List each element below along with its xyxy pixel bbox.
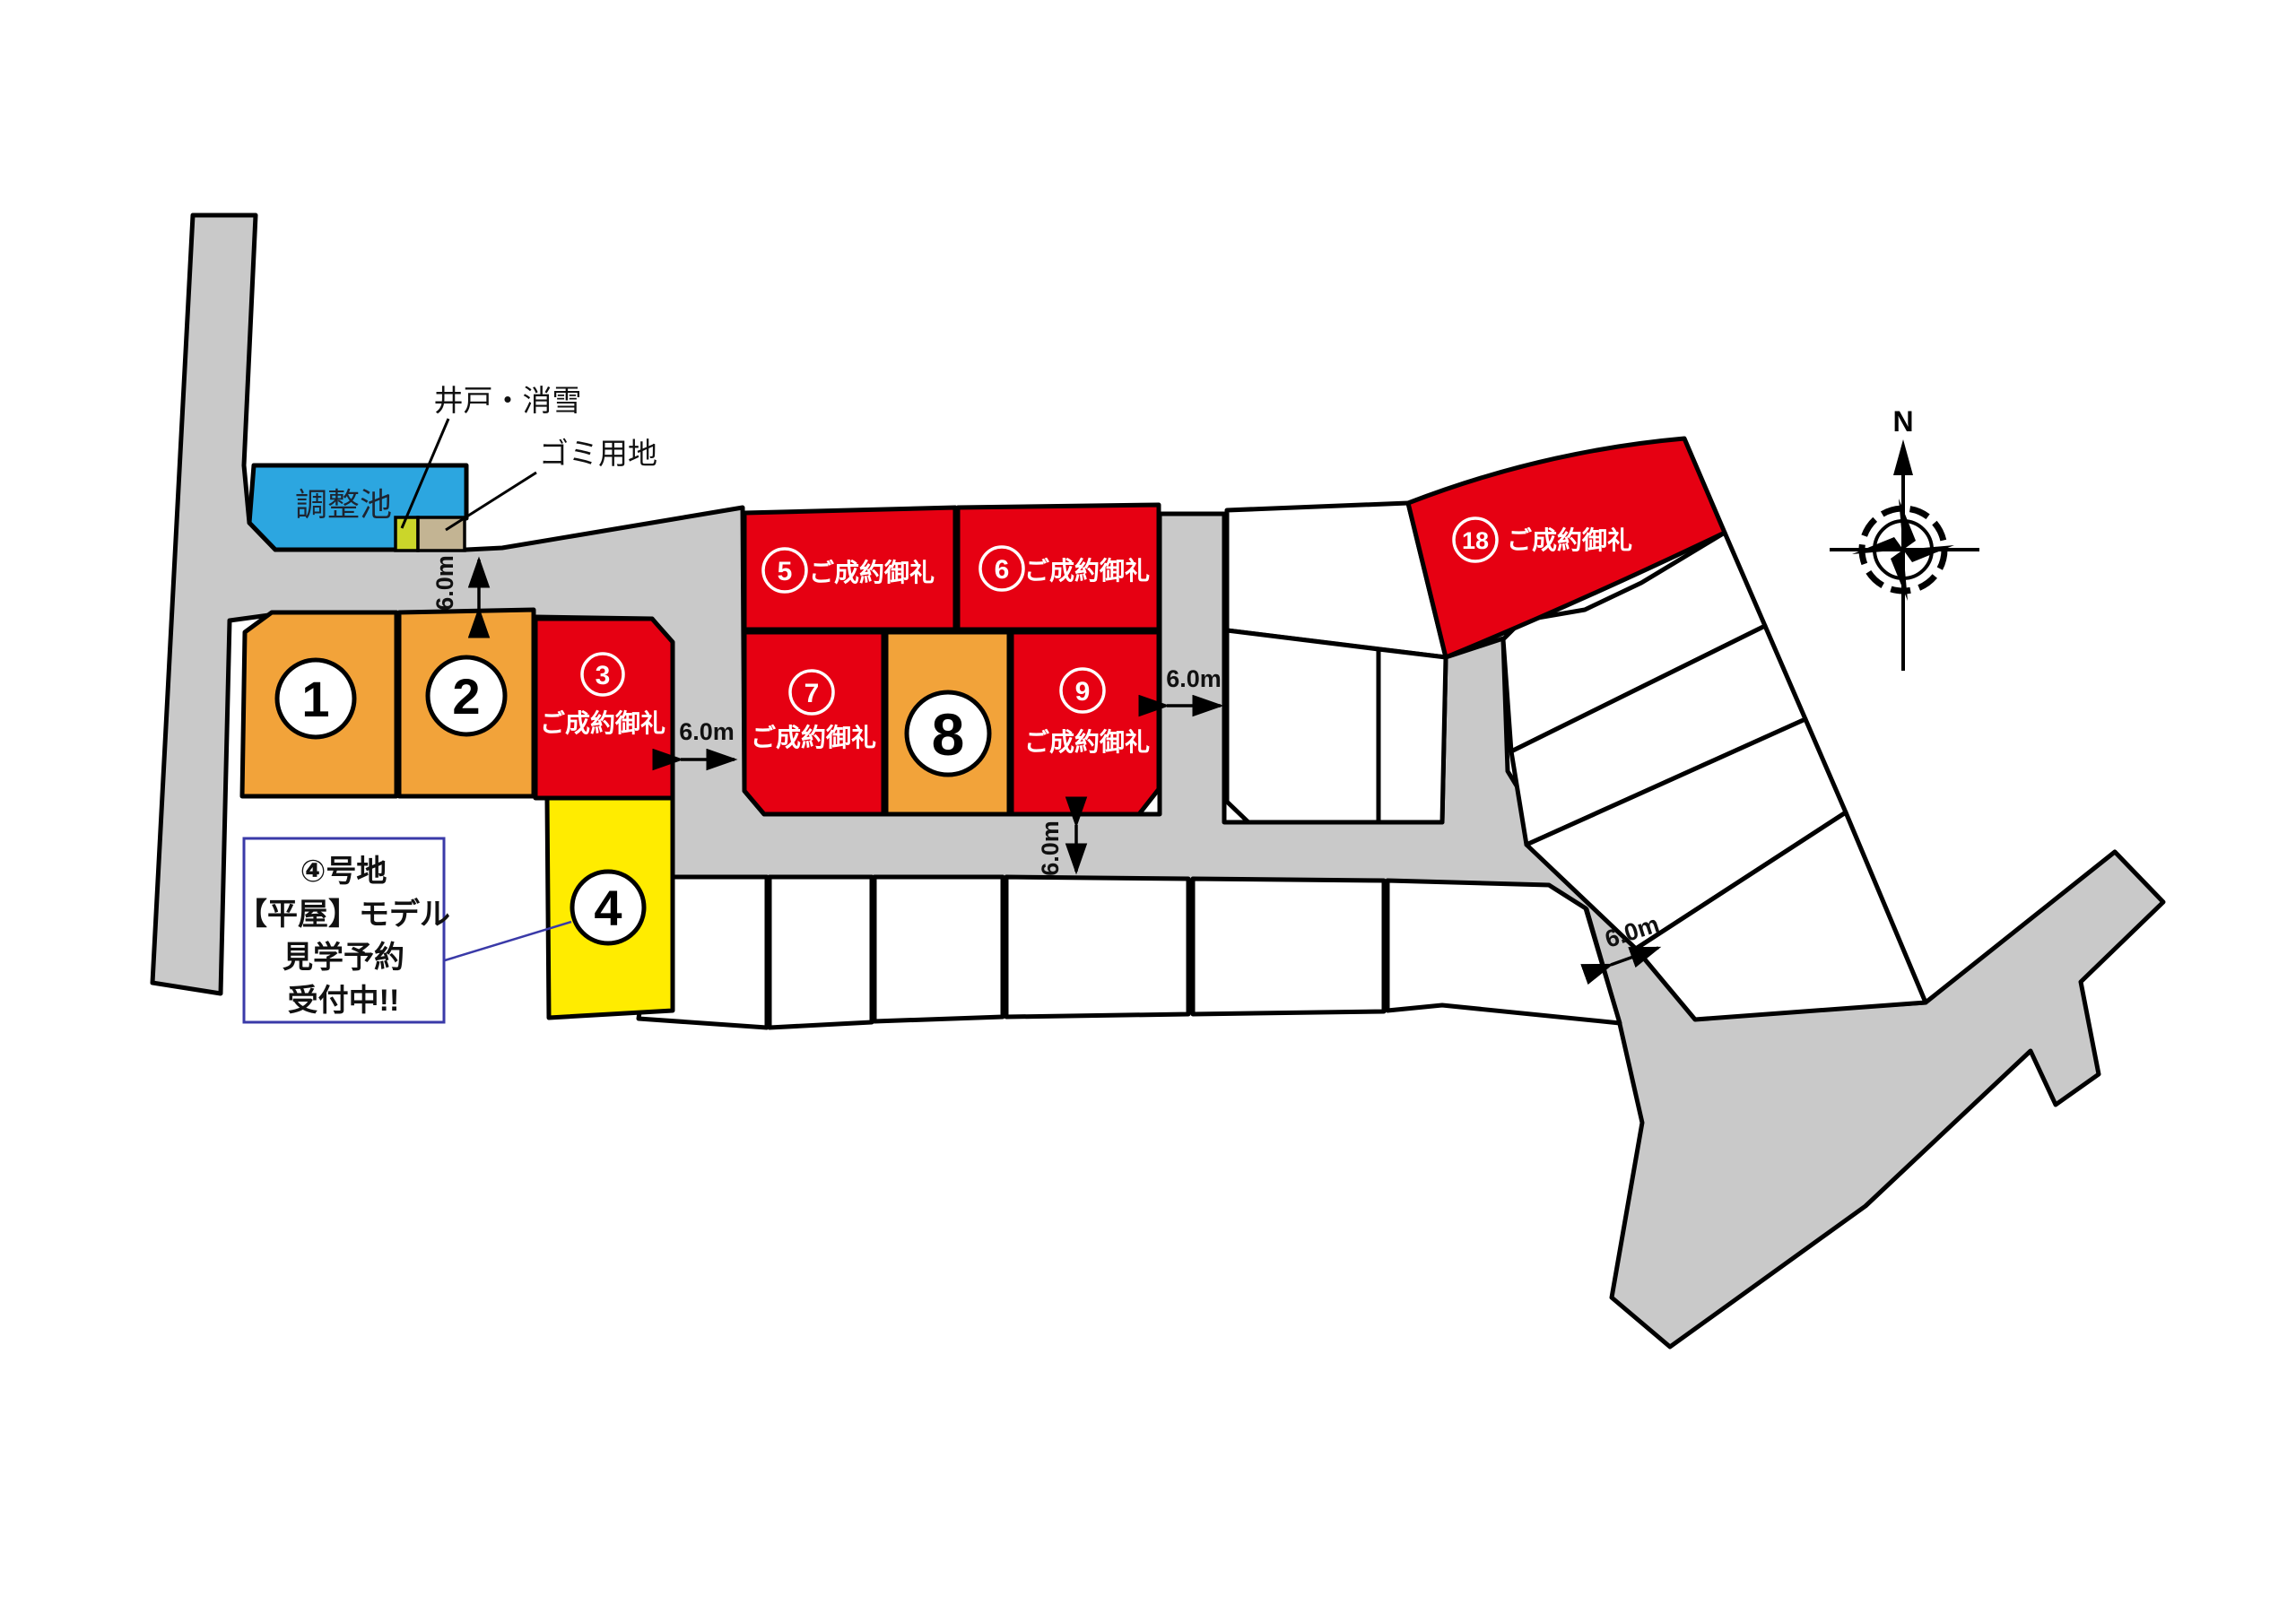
lot-number: 4 — [594, 880, 622, 936]
svg-text:6.0m: 6.0m — [431, 555, 458, 611]
svg-text:6.0m: 6.0m — [679, 718, 735, 745]
white-lot-row-5[interactable] — [1193, 879, 1384, 1014]
lot-number: 3 — [596, 661, 611, 690]
lot-number: 9 — [1075, 677, 1091, 707]
lot-5[interactable]: 5 ご成約御礼 — [744, 508, 955, 629]
lot-number: 2 — [452, 668, 480, 725]
white-lot-upper-2[interactable] — [1227, 630, 1378, 822]
subdivision-map: 1 2 3 ご成約御礼 4 5 ご成約御礼 6 ご成約御礼 7 ご成約御礼 — [0, 0, 2296, 1623]
lot-status: ご成約御礼 — [540, 708, 665, 737]
lot-number: 7 — [804, 679, 820, 708]
annotation-line-3: 見学予約 — [283, 940, 404, 975]
lot-status: ご成約御礼 — [809, 558, 935, 586]
pond-label: 調整池 — [295, 486, 392, 523]
lot-2[interactable]: 2 — [399, 610, 534, 796]
lot-9[interactable]: 9 ご成約御礼 — [1012, 632, 1159, 814]
lot-status: ご成約御礼 — [751, 723, 876, 751]
annotation-box: ④号地 【平屋】モデル 見学予約 受付中!! — [237, 838, 571, 1022]
lot-status: ご成約御礼 — [1507, 525, 1632, 554]
well-snowmelt-label: 井戸・消雪 — [434, 384, 582, 417]
annotation-line-2: 【平屋】モデル — [237, 897, 450, 932]
lot-7[interactable]: 7 ご成約御礼 — [744, 632, 883, 814]
lot-4[interactable]: 4 — [547, 798, 673, 1018]
lot-8[interactable]: 8 — [886, 632, 1009, 814]
lot-status: ご成約御礼 — [1024, 556, 1150, 585]
annotation-line-4: 受付中!! — [288, 984, 400, 1018]
compass-rose-icon — [1852, 499, 1954, 601]
lot-number: 18 — [1462, 527, 1489, 554]
compass: N — [1830, 405, 1979, 671]
white-lot-row-3[interactable] — [874, 877, 1003, 1021]
annotation-line-1: ④号地 — [300, 855, 387, 889]
lot-1[interactable]: 1 — [242, 612, 396, 796]
white-lot-upper-3[interactable] — [1378, 649, 1446, 822]
compass-needle-icon — [1893, 439, 1913, 475]
white-lot-row-2[interactable] — [770, 877, 872, 1028]
lot-number: 6 — [995, 555, 1010, 585]
white-lot-row-4[interactable] — [1006, 877, 1188, 1017]
lot-number: 1 — [301, 671, 329, 727]
lot-map-page: 1 2 3 ご成約御礼 4 5 ご成約御礼 6 ご成約御礼 7 ご成約御礼 — [0, 0, 2296, 1623]
garbage-label: ゴミ用地 — [539, 437, 657, 470]
compass-north-label: N — [1892, 405, 1913, 438]
lot-status: ご成約御礼 — [1024, 727, 1150, 756]
svg-text:6.0m: 6.0m — [1166, 665, 1222, 692]
lot-number: 8 — [932, 701, 965, 768]
well-snowmelt-plot — [396, 517, 418, 551]
lot-3[interactable]: 3 ご成約御礼 — [535, 619, 673, 798]
lot-number: 5 — [778, 557, 793, 586]
svg-text:6.0m: 6.0m — [1037, 820, 1064, 876]
lot-6[interactable]: 6 ご成約御礼 — [958, 505, 1159, 629]
